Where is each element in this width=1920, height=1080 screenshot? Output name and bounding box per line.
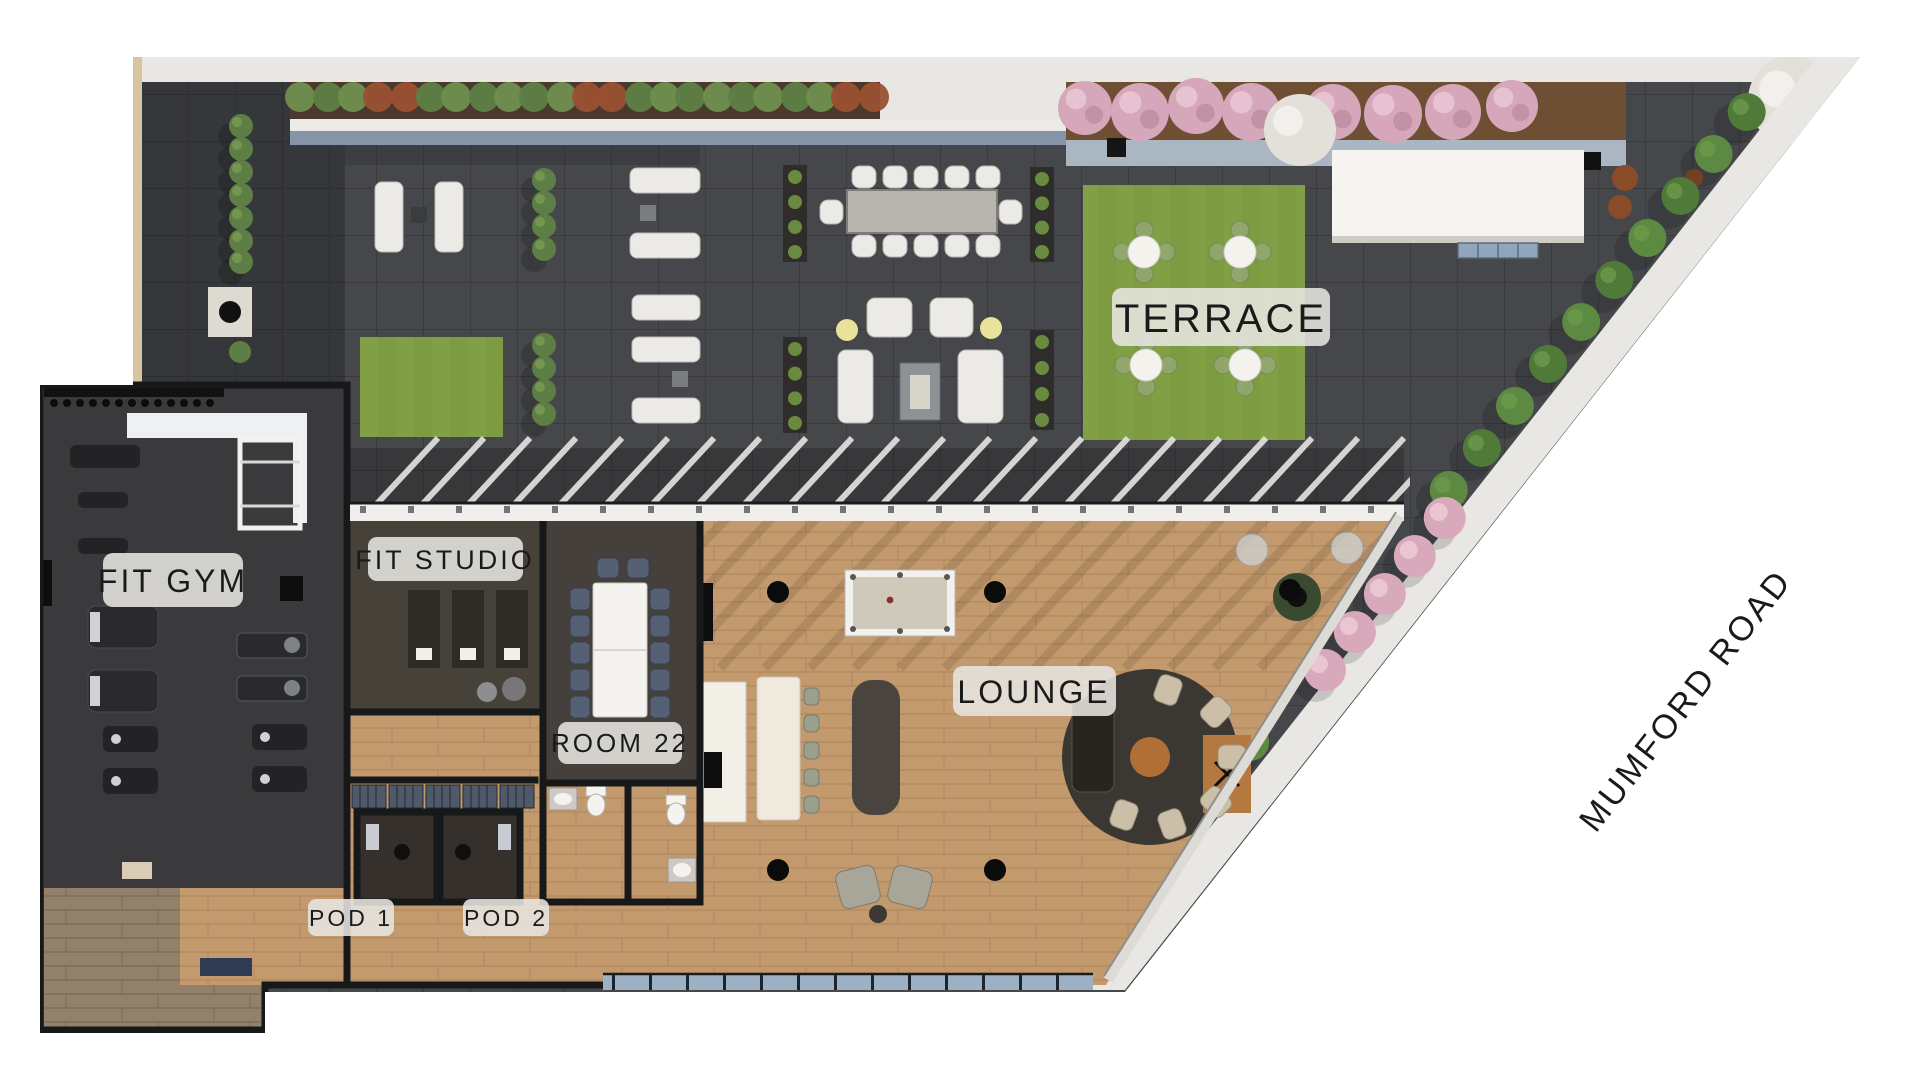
round-coffee-table	[1130, 737, 1170, 777]
room-22-label-text: ROOM 22	[551, 728, 689, 758]
label-terrace: TERRACE	[1112, 288, 1330, 346]
floor-plan-page: TERRACE FIT GYM FIT STUDIO ROOM 22 LOUNG…	[0, 0, 1920, 1080]
rooftop-structure-shadow	[1332, 236, 1584, 243]
label-fit-gym: FIT GYM	[98, 553, 248, 607]
pod2-chair	[455, 844, 471, 860]
street-label: MUMFORD ROAD	[1572, 562, 1800, 839]
label-fit-studio: FIT STUDIO	[355, 537, 535, 581]
floor-plan-drawing: TERRACE FIT GYM FIT STUDIO ROOM 22 LOUNG…	[0, 0, 1920, 1080]
utility-box	[1107, 138, 1126, 157]
window-wall-south	[603, 974, 1093, 990]
label-room-22: ROOM 22	[551, 722, 689, 764]
communal-table	[852, 680, 900, 815]
rooftop-structure	[1332, 150, 1584, 243]
label-pod-2: POD 2	[463, 899, 549, 936]
side-table	[869, 905, 887, 923]
label-lounge: LOUNGE	[953, 666, 1116, 716]
corten-planter	[1612, 165, 1638, 191]
side-table-yellow	[980, 317, 1002, 339]
gravel-strip-blue	[290, 131, 1066, 145]
fit-studio-label-text: FIT STUDIO	[355, 545, 535, 575]
rooftop-structure-vent	[1584, 152, 1601, 170]
tree-planter	[219, 301, 241, 323]
top-sidewalk	[133, 57, 1863, 82]
west-curb-strip	[133, 57, 142, 387]
planter-walk-strip	[290, 119, 1066, 132]
corten-planter	[1608, 195, 1632, 219]
side-table-yellow	[836, 319, 858, 341]
top-planter-bushes	[285, 82, 889, 112]
lounge-label-text: LOUNGE	[957, 674, 1110, 710]
pool-table	[845, 570, 955, 636]
glass-wall-north	[350, 503, 1404, 521]
entry-doormat	[200, 958, 252, 976]
appliance	[704, 752, 722, 788]
pod1-monitor	[366, 824, 379, 850]
label-pod-1: POD 1	[308, 899, 394, 936]
fit-gym-label-text: FIT GYM	[98, 563, 248, 599]
pod-1-label-text: POD 1	[309, 905, 393, 931]
gym-skylight	[127, 413, 307, 438]
pod2-monitor	[498, 824, 511, 850]
lawn-square-west	[360, 337, 503, 437]
pod1-chair	[394, 844, 410, 860]
pod-2-label-text: POD 2	[464, 905, 548, 931]
lockers	[352, 785, 534, 808]
bush	[229, 341, 251, 363]
gym-bench	[122, 862, 152, 879]
terrace-label-text: TERRACE	[1115, 297, 1327, 341]
